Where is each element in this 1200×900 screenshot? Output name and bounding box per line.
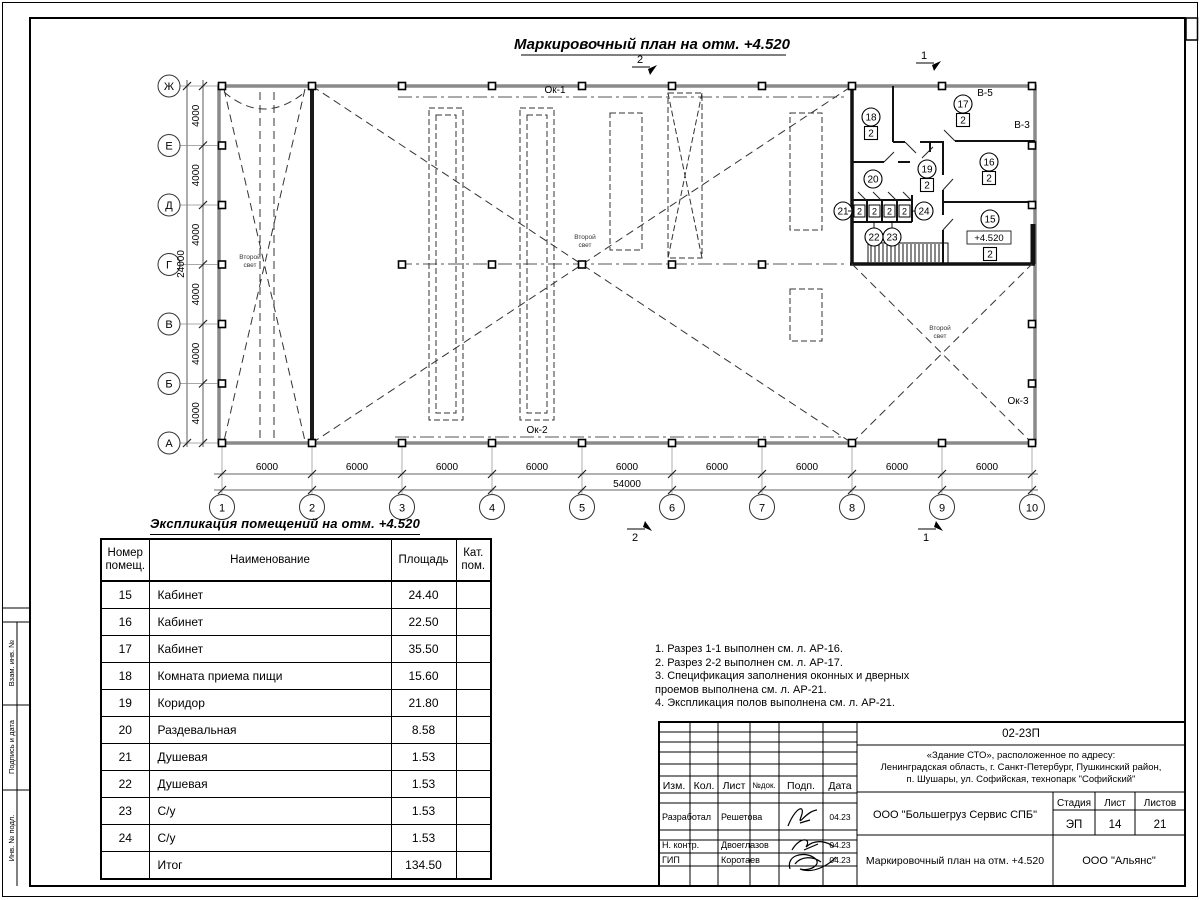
- column-marker: [579, 440, 586, 447]
- category-label: 2: [887, 207, 892, 217]
- room-area-cell: 22.50: [391, 609, 456, 636]
- table-row: 16Кабинет22.50: [101, 609, 491, 636]
- sheets-total: 21: [1154, 819, 1167, 831]
- column-marker: [669, 440, 676, 447]
- second-light-label: Второй: [239, 253, 261, 261]
- category-label: 2: [987, 250, 993, 261]
- column-marker: [489, 440, 496, 447]
- column-marker: [939, 440, 946, 447]
- column-marker: [939, 83, 946, 90]
- table-row: Итог134.50: [101, 852, 491, 880]
- column-marker: [759, 440, 766, 447]
- stage-label: Стадия: [1057, 798, 1091, 809]
- room-category-cell: [456, 609, 491, 636]
- axis-label-col: 8: [849, 503, 855, 515]
- room-number-cell: 19: [101, 690, 149, 717]
- room-area-cell: 1.53: [391, 798, 456, 825]
- table-row: 19Коридор21.80: [101, 690, 491, 717]
- room-name-cell: Раздевальная: [149, 717, 391, 744]
- plan-title: Маркировочный план на отм. +4.520: [514, 36, 791, 55]
- table-row: 21Душевая1.53: [101, 744, 491, 771]
- second-light-label: свет: [933, 333, 946, 340]
- room-area-cell: 134.50: [391, 852, 456, 880]
- dim-label: 6000: [346, 462, 369, 473]
- axis-label-col: 7: [759, 503, 765, 515]
- table-row: 18Комната приема пищи15.60: [101, 663, 491, 690]
- column-marker: [759, 83, 766, 90]
- contractor-company: ООО "Большегруз Сервис СПБ": [873, 809, 1037, 821]
- room-category-cell: [456, 744, 491, 771]
- category-label: 2: [986, 174, 992, 185]
- corner-code-box: [1186, 18, 1198, 40]
- window-band-label: Ок-3: [1007, 396, 1028, 407]
- table-row: 24С/у1.53: [101, 825, 491, 852]
- second-light-label: свет: [243, 262, 256, 269]
- room-number-cell: 24: [101, 825, 149, 852]
- axis-mark-v5: В-5: [977, 88, 993, 99]
- column-marker: [219, 202, 226, 209]
- room-number-label: 16: [983, 158, 995, 169]
- stamp-label: Инв. № подл.: [7, 815, 16, 862]
- title-block: 02-23П «Здание СТО», расположенное по ад…: [659, 722, 1185, 886]
- column-marker: [219, 142, 226, 149]
- axis-label-row: Б: [165, 379, 172, 391]
- axis-label-col: 5: [579, 503, 585, 515]
- room-name-cell: Кабинет: [149, 636, 391, 663]
- room-number-label: 21: [837, 207, 849, 218]
- room-number-label: 23: [886, 233, 898, 244]
- room-category-cell: [456, 852, 491, 880]
- room-number-cell: 23: [101, 798, 149, 825]
- axis-label-row: А: [165, 438, 173, 450]
- room-number-cell: 21: [101, 744, 149, 771]
- column-marker: [1029, 440, 1036, 447]
- column-marker: [219, 380, 226, 387]
- section-mark-label: 2: [637, 54, 643, 66]
- axis-label-col: 4: [489, 503, 495, 515]
- page-title: Маркировочный план на отм. +4.520: [514, 36, 791, 53]
- stamp-label: Подпись и дата: [7, 719, 16, 774]
- room-category-cell: [456, 663, 491, 690]
- column-marker: [399, 440, 406, 447]
- col-header-kol: Кол.: [694, 780, 715, 792]
- room-number-cell: 17: [101, 636, 149, 663]
- table-column-header: Номер помещ.: [101, 539, 149, 581]
- room-number-cell: 15: [101, 581, 149, 609]
- table-header-row: Номер помещ.НаименованиеПлощадьКат. пом.: [101, 539, 491, 581]
- section-mark-label: 1: [923, 532, 929, 544]
- dim-label: 6000: [796, 462, 819, 473]
- room-name-cell: Душевая: [149, 771, 391, 798]
- column-marker: [1029, 380, 1036, 387]
- axis-label-col: 6: [669, 503, 675, 515]
- room-area-cell: 1.53: [391, 825, 456, 852]
- dim-label: 6000: [616, 462, 639, 473]
- note-line: 4. Экспликация полов выполнена см. л. АР…: [655, 697, 985, 711]
- column-marker: [1029, 202, 1036, 209]
- column-marker: [219, 261, 226, 268]
- dim-total-label: 54000: [613, 479, 641, 490]
- drawing-name: Маркировочный план на отм. +4.520: [866, 855, 1044, 867]
- window-band-label: Ок-1: [544, 85, 565, 96]
- col-header-ndok: №док.: [752, 781, 775, 790]
- room-number-label: 22: [868, 233, 880, 244]
- signature-icon: [788, 809, 817, 826]
- section-mark-label: 2: [632, 532, 638, 544]
- dim-label: 6000: [526, 462, 549, 473]
- column-marker: [1029, 321, 1036, 328]
- room-category-cell: [456, 798, 491, 825]
- table-row: 20Раздевальная8.58: [101, 717, 491, 744]
- axis-label-row: Е: [165, 141, 172, 153]
- column-marker: [489, 261, 496, 268]
- drawing-sheet: Взам. инв. № Подпись и дата Инв. № подл.…: [0, 0, 1200, 900]
- room-name-cell: С/у: [149, 798, 391, 825]
- axis-label-col: 1: [219, 503, 225, 515]
- exploitation-table: Номер помещ.НаименованиеПлощадьКат. пом.…: [100, 538, 492, 880]
- column-marker: [489, 83, 496, 90]
- dim-label: 4000: [191, 104, 202, 127]
- grid-and-dimensions: 1600026000360004600056000660007600086000…: [158, 75, 1045, 520]
- room-name-cell: Кабинет: [149, 581, 391, 609]
- note-line: 1. Разрез 1-1 выполнен см. л. АР-16.: [655, 643, 985, 657]
- room-area-cell: 8.58: [391, 717, 456, 744]
- plan-walls: [219, 86, 1035, 443]
- sheets-label: Листов: [1144, 798, 1177, 809]
- category-label: 2: [868, 129, 874, 140]
- sign-date: 04.23: [829, 840, 851, 850]
- column-marker: [219, 321, 226, 328]
- room-area-cell: 1.53: [391, 771, 456, 798]
- stamp-label: Взам. инв. №: [7, 640, 16, 686]
- room-area-cell: 1.53: [391, 744, 456, 771]
- stair: [868, 243, 948, 263]
- room-category-cell: [456, 636, 491, 663]
- room-area-cell: 21.80: [391, 690, 456, 717]
- person-name: Решетова: [721, 812, 762, 822]
- window-band-label: Ок-2: [526, 425, 547, 436]
- column-marker: [309, 83, 316, 90]
- room-name-cell: С/у: [149, 825, 391, 852]
- person-name: Двоеглазов: [721, 840, 769, 850]
- category-label: 2: [902, 207, 907, 217]
- sheet-number: 14: [1109, 819, 1122, 831]
- table-column-header: Наименование: [149, 539, 391, 581]
- side-stamp: Взам. инв. № Подпись и дата Инв. № подл.: [3, 608, 31, 886]
- table-row: 22Душевая1.53: [101, 771, 491, 798]
- table-row: 15Кабинет24.40: [101, 581, 491, 609]
- person-name: Коротаев: [721, 855, 760, 865]
- room-category-cell: [456, 825, 491, 852]
- column-marker: [399, 261, 406, 268]
- room-name-cell: Коридор: [149, 690, 391, 717]
- axis-label-row: Д: [165, 200, 173, 212]
- room-area-cell: 35.50: [391, 636, 456, 663]
- column-marker: [579, 261, 586, 268]
- axis-label-row: В: [165, 319, 172, 331]
- room-number-label: 17: [957, 100, 969, 111]
- dim-total-label: 24000: [176, 250, 187, 278]
- room-number-cell: 20: [101, 717, 149, 744]
- col-header-izm: Изм.: [663, 780, 686, 792]
- dim-label: 4000: [191, 402, 202, 425]
- signature-icon: [792, 840, 834, 850]
- room-number-label: 19: [921, 165, 933, 176]
- second-light-label: свет: [578, 242, 591, 249]
- axis-label-col: 2: [309, 503, 315, 515]
- room-area-cell: 24.40: [391, 581, 456, 609]
- second-light-label: Второй: [574, 233, 596, 241]
- axis-label-row: Г: [166, 260, 172, 272]
- dim-label: 4000: [191, 283, 202, 306]
- note-line: 2. Разрез 2-2 выполнен см. л. АР-17.: [655, 657, 985, 671]
- second-light-label: Второй: [929, 324, 951, 332]
- room-number-cell: 16: [101, 609, 149, 636]
- dim-label: 4000: [191, 223, 202, 246]
- sign-date: 04.23: [829, 812, 851, 822]
- col-header-list: Лист: [723, 780, 746, 792]
- column-marker: [669, 83, 676, 90]
- col-header-podp: Подп.: [787, 780, 815, 792]
- note-line: 3. Спецификация заполнения оконных и две…: [655, 670, 985, 697]
- room-number-cell: 22: [101, 771, 149, 798]
- room-name-cell: Комната приема пищи: [149, 663, 391, 690]
- room-category-cell: [456, 690, 491, 717]
- dim-label: 4000: [191, 164, 202, 187]
- axis-label-col: 3: [399, 503, 405, 515]
- column-marker: [309, 440, 316, 447]
- room-number-cell: [101, 852, 149, 880]
- category-label: 2: [857, 207, 862, 217]
- axis-label-row: Ж: [164, 81, 174, 93]
- room-number-label: 24: [918, 207, 930, 218]
- column-marker: [219, 83, 226, 90]
- table-column-header: Кат. пом.: [456, 539, 491, 581]
- column-marker: [579, 83, 586, 90]
- table-column-header: Площадь: [391, 539, 456, 581]
- dim-label: 6000: [706, 462, 729, 473]
- room-number-cell: 18: [101, 663, 149, 690]
- room-area-cell: 15.60: [391, 663, 456, 690]
- dim-label: 6000: [256, 462, 279, 473]
- column-marker: [849, 440, 856, 447]
- dim-label: 6000: [976, 462, 999, 473]
- column-marker: [669, 261, 676, 268]
- axis-mark-v3: В-3: [1014, 120, 1030, 131]
- role-label: Разработал: [662, 812, 711, 822]
- role-label: ГИП: [662, 855, 680, 865]
- section-mark-label: 1: [921, 50, 927, 62]
- doc-number: 02-23П: [1002, 728, 1040, 740]
- column-marker: [759, 261, 766, 268]
- dim-label: 6000: [886, 462, 909, 473]
- elevation-mark: +4.520: [974, 233, 1003, 244]
- notes: 1. Разрез 1-1 выполнен см. л. АР-16.2. Р…: [655, 643, 985, 711]
- room-name-cell: Кабинет: [149, 609, 391, 636]
- project-address: п. Шушары, ул. Софийская, технопарк "Соф…: [907, 774, 1136, 785]
- col-header-data: Дата: [828, 780, 851, 792]
- room-category-cell: [456, 771, 491, 798]
- room-number-label: 15: [984, 215, 996, 226]
- sheet-label: Лист: [1104, 798, 1126, 809]
- design-org: ООО "Альянс": [1082, 855, 1156, 867]
- dashed-openings: [429, 93, 822, 420]
- room-category-cell: [456, 717, 491, 744]
- column-marker: [1029, 83, 1036, 90]
- project-address: «Здание СТО», расположенное по адресу:: [927, 750, 1116, 761]
- table-row: 23С/у1.53: [101, 798, 491, 825]
- dim-label: 4000: [191, 342, 202, 365]
- table-row: 17Кабинет35.50: [101, 636, 491, 663]
- room-name-cell: Душевая: [149, 744, 391, 771]
- column-marker: [1029, 142, 1036, 149]
- category-label: 2: [924, 181, 930, 192]
- room-number-label: 18: [865, 113, 877, 124]
- axis-label-col: 9: [939, 503, 945, 515]
- room-number-label: 20: [867, 175, 879, 186]
- stage-value: ЭП: [1066, 819, 1083, 831]
- room-category-cell: [456, 581, 491, 609]
- column-marker: [399, 83, 406, 90]
- column-marker: [219, 440, 226, 447]
- role-label: Н. контр.: [662, 840, 699, 850]
- category-label: 2: [960, 116, 966, 127]
- category-label: 2: [872, 207, 877, 217]
- project-address: Ленинградская область, г. Санкт-Петербур…: [881, 762, 1162, 773]
- axis-label-col: 10: [1026, 503, 1038, 515]
- exploitation-table-title: Экспликация помещений на отм. +4.520: [150, 516, 420, 535]
- room-name-cell: Итог: [149, 852, 391, 880]
- column-marker: [849, 83, 856, 90]
- dim-label: 6000: [436, 462, 459, 473]
